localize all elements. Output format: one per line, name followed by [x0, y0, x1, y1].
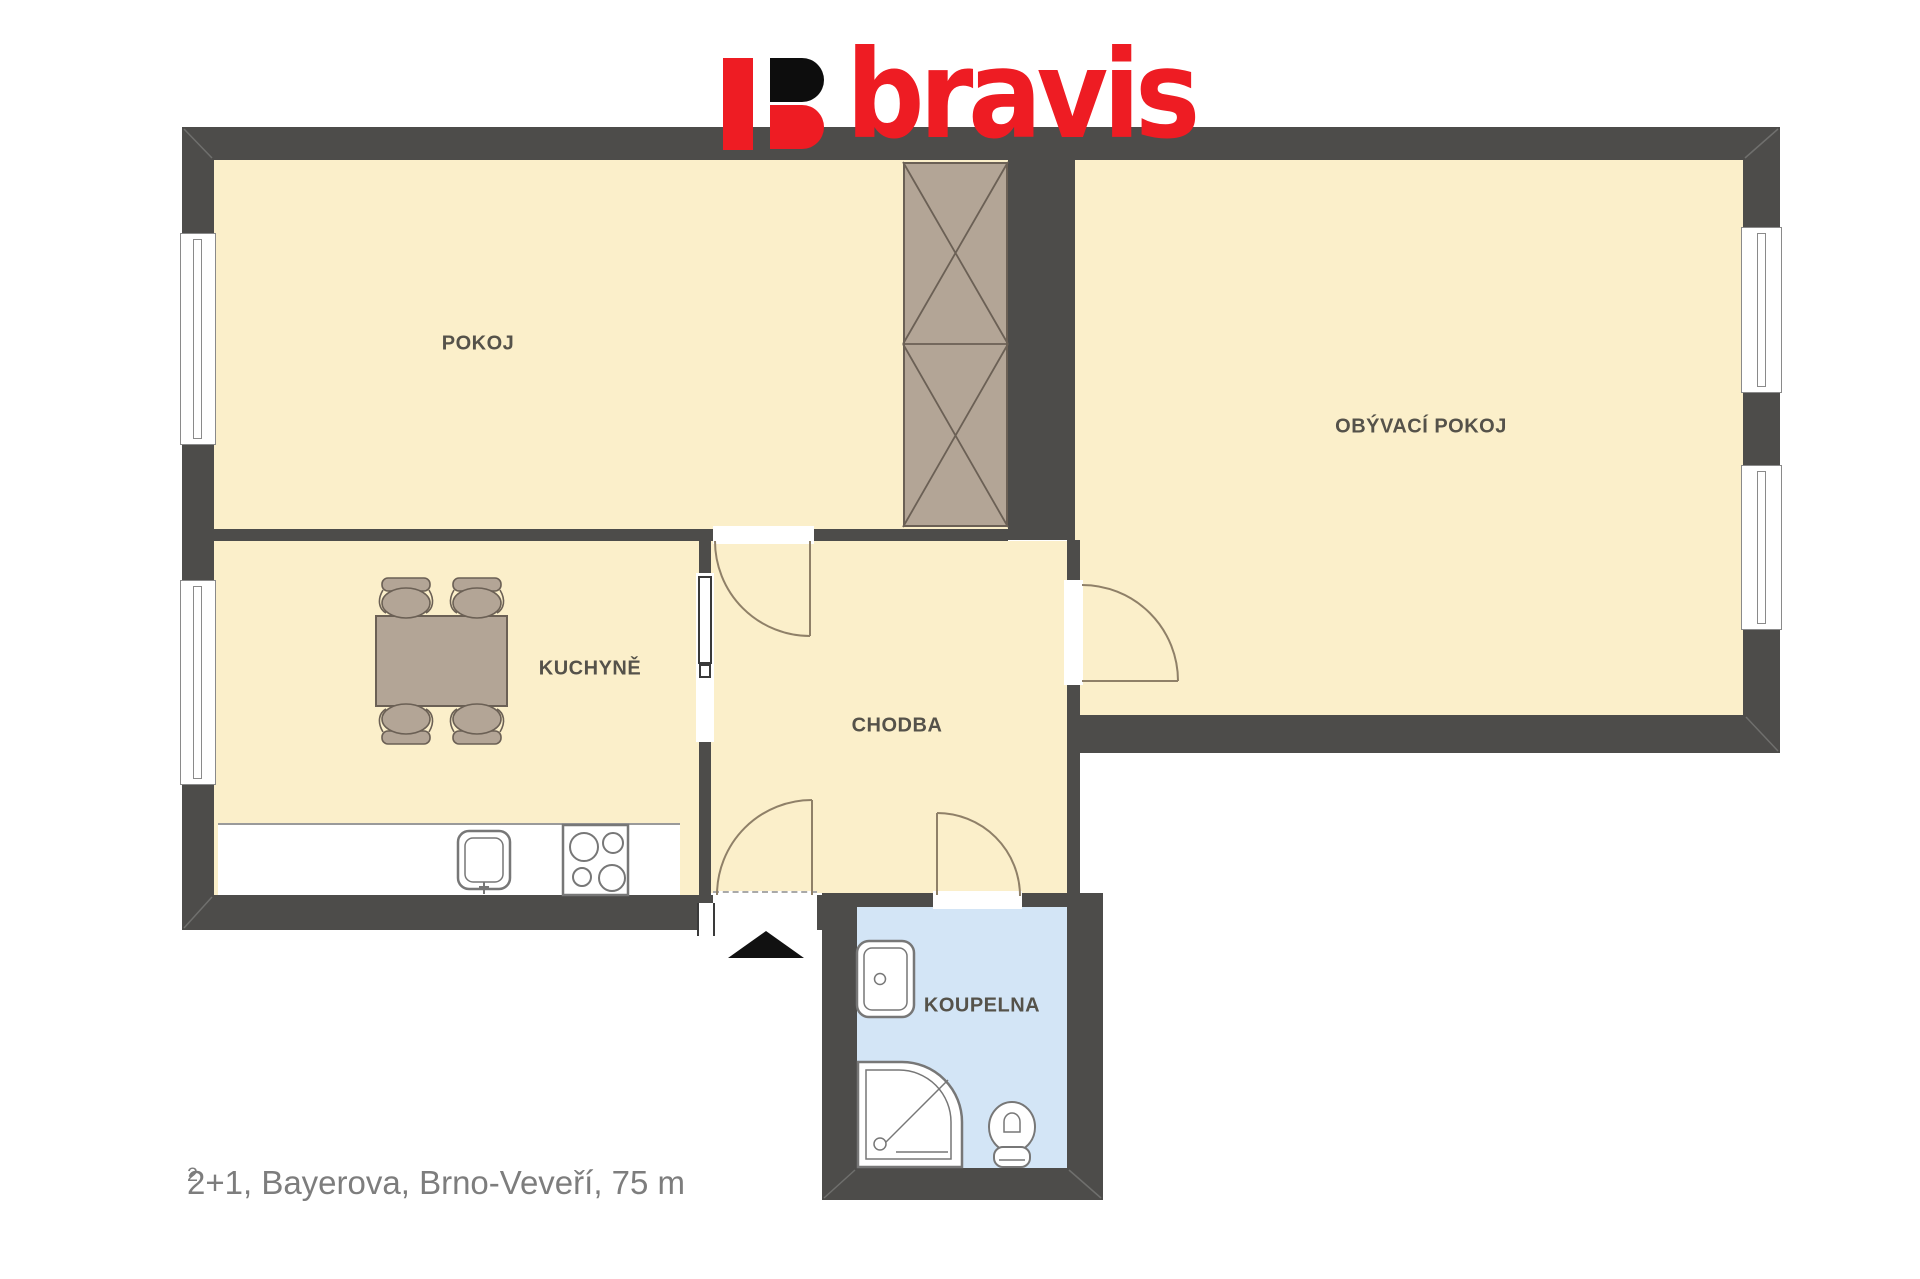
- door-opening-pokoj: [713, 526, 814, 544]
- door-opening-obyvaci: [1064, 580, 1083, 685]
- wardrobe-icon: [903, 162, 1008, 527]
- bravis-logo-text: bravis: [846, 34, 1195, 156]
- caption-superscript: 2: [187, 1164, 198, 1187]
- wall-koupelna-bottom: [822, 1168, 1103, 1200]
- window-icon: [180, 580, 216, 785]
- room-label-pokoj: POKOJ: [442, 333, 515, 356]
- bravis-logo-b-bottom: [770, 105, 824, 149]
- floor-plan: POKOJ OBÝVACÍ POKOJ KUCHYNĚ CHODBA KOUPE…: [0, 0, 1920, 1279]
- window-glass: [1757, 471, 1766, 624]
- bravis-logo-b-icon: [770, 58, 824, 150]
- door-opening-koupelna: [933, 891, 1022, 909]
- window-icon: [1741, 227, 1782, 393]
- window-icon: [180, 233, 216, 445]
- room-floor-pokoj: [214, 160, 1008, 529]
- window-icon: [1741, 465, 1782, 630]
- room-label-koupelna: KOUPELNA: [924, 995, 1040, 1018]
- bravis-logo-bar: [723, 58, 753, 150]
- window-glass: [193, 586, 202, 779]
- room-floor-koupelna: [857, 907, 1067, 1168]
- door-opening-entrance: [713, 891, 817, 934]
- wall-pokoj-obyvaci: [1008, 160, 1075, 540]
- bravis-logo-b-top: [770, 58, 824, 102]
- wall-obyvaci-south: [1073, 715, 1780, 753]
- kitchen-door-handle: [699, 664, 711, 678]
- kitchen-door-frame-end: [697, 903, 715, 936]
- wall-koupelna-left: [822, 893, 857, 1200]
- caption-text: 2+1, Bayerova, Brno-Veveří, 75 m: [187, 1164, 685, 1202]
- wall-pokoj-south: [214, 529, 1008, 541]
- kitchen-door-leaf: [698, 576, 712, 664]
- dining-table-icon: [375, 615, 508, 707]
- kitchen-counter: [218, 823, 680, 895]
- room-label-kuchyne: KUCHYNĚ: [539, 658, 641, 681]
- wall-koupelna-right: [1067, 893, 1103, 1200]
- entrance-arrow-icon: [728, 931, 804, 958]
- window-glass: [193, 239, 202, 439]
- window-glass: [1757, 233, 1766, 387]
- room-label-obyvaci-pokoj: OBÝVACÍ POKOJ: [1335, 416, 1507, 439]
- room-label-chodba: CHODBA: [852, 715, 943, 738]
